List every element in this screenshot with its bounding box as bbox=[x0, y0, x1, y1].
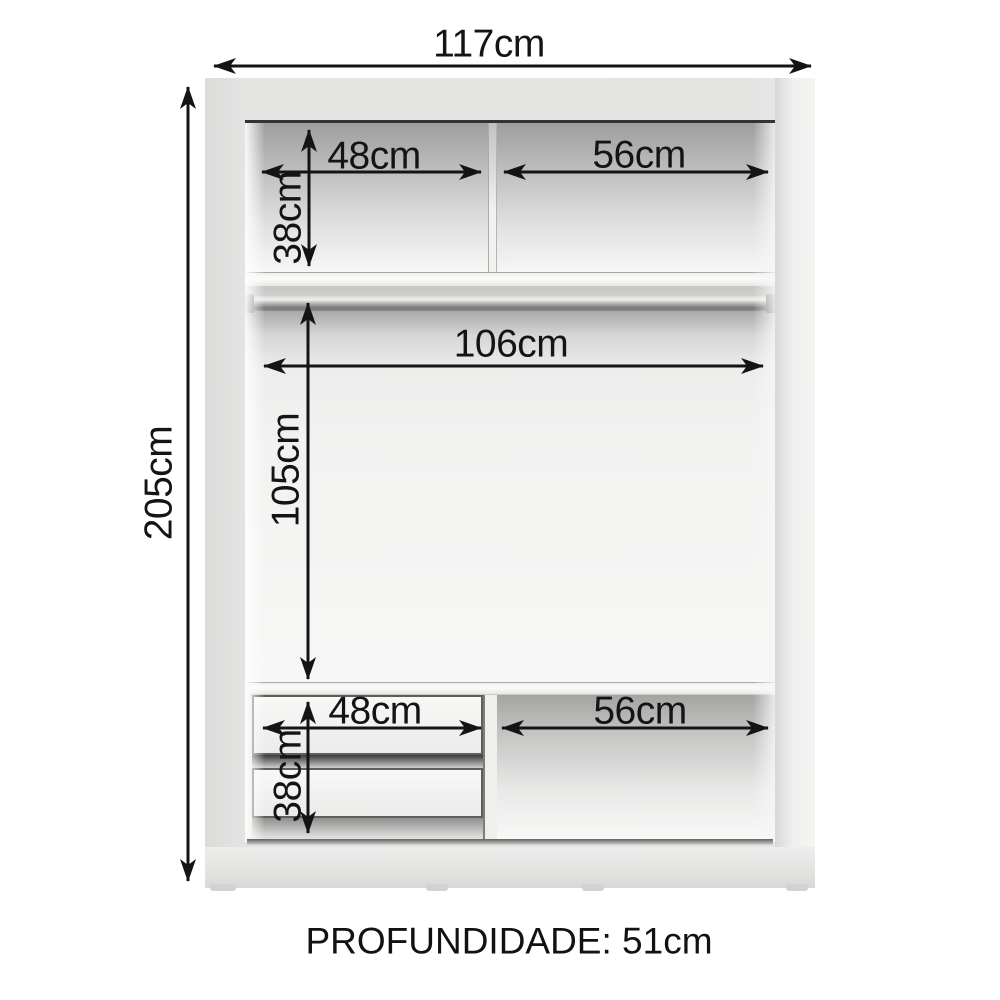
right-frame-panel bbox=[775, 78, 815, 888]
top-section-divider bbox=[488, 123, 497, 272]
foot-shadow bbox=[426, 884, 448, 891]
foot-shadow bbox=[582, 884, 604, 891]
top-right-width-label: 56cm bbox=[592, 136, 685, 175]
hanging-height-label: 105cm bbox=[267, 413, 306, 528]
bottom-section-divider bbox=[483, 695, 497, 842]
wardrobe-dimension-diagram: 117cm 205cm 48cm 56cm 38cm 106cm 105cm 4… bbox=[0, 0, 1000, 1000]
bottom-right-width-label: 56cm bbox=[593, 692, 686, 731]
overall-height-label: 205cm bbox=[140, 426, 179, 541]
foot-shadow bbox=[210, 884, 236, 891]
drawer-width-label: 48cm bbox=[328, 692, 421, 731]
depth-label: PROFUNDIDADE: 51cm bbox=[305, 923, 712, 960]
hanging-rod bbox=[247, 296, 773, 311]
base-panel bbox=[205, 847, 815, 888]
sliding-door-rail bbox=[247, 839, 773, 845]
overall-width-label: 117cm bbox=[433, 25, 545, 64]
foot-shadow bbox=[786, 884, 808, 891]
right-wall-highlight bbox=[753, 123, 775, 842]
upper-shelf bbox=[245, 272, 775, 287]
lower-shelf bbox=[245, 682, 775, 695]
rod-width-label: 106cm bbox=[454, 325, 569, 364]
left-wall-highlight bbox=[245, 123, 265, 842]
top-left-width-label: 48cm bbox=[327, 137, 420, 176]
drawer-height-label: 38cm bbox=[269, 729, 308, 822]
top-height-label: 38cm bbox=[269, 171, 308, 264]
wardrobe-interior bbox=[245, 120, 775, 845]
